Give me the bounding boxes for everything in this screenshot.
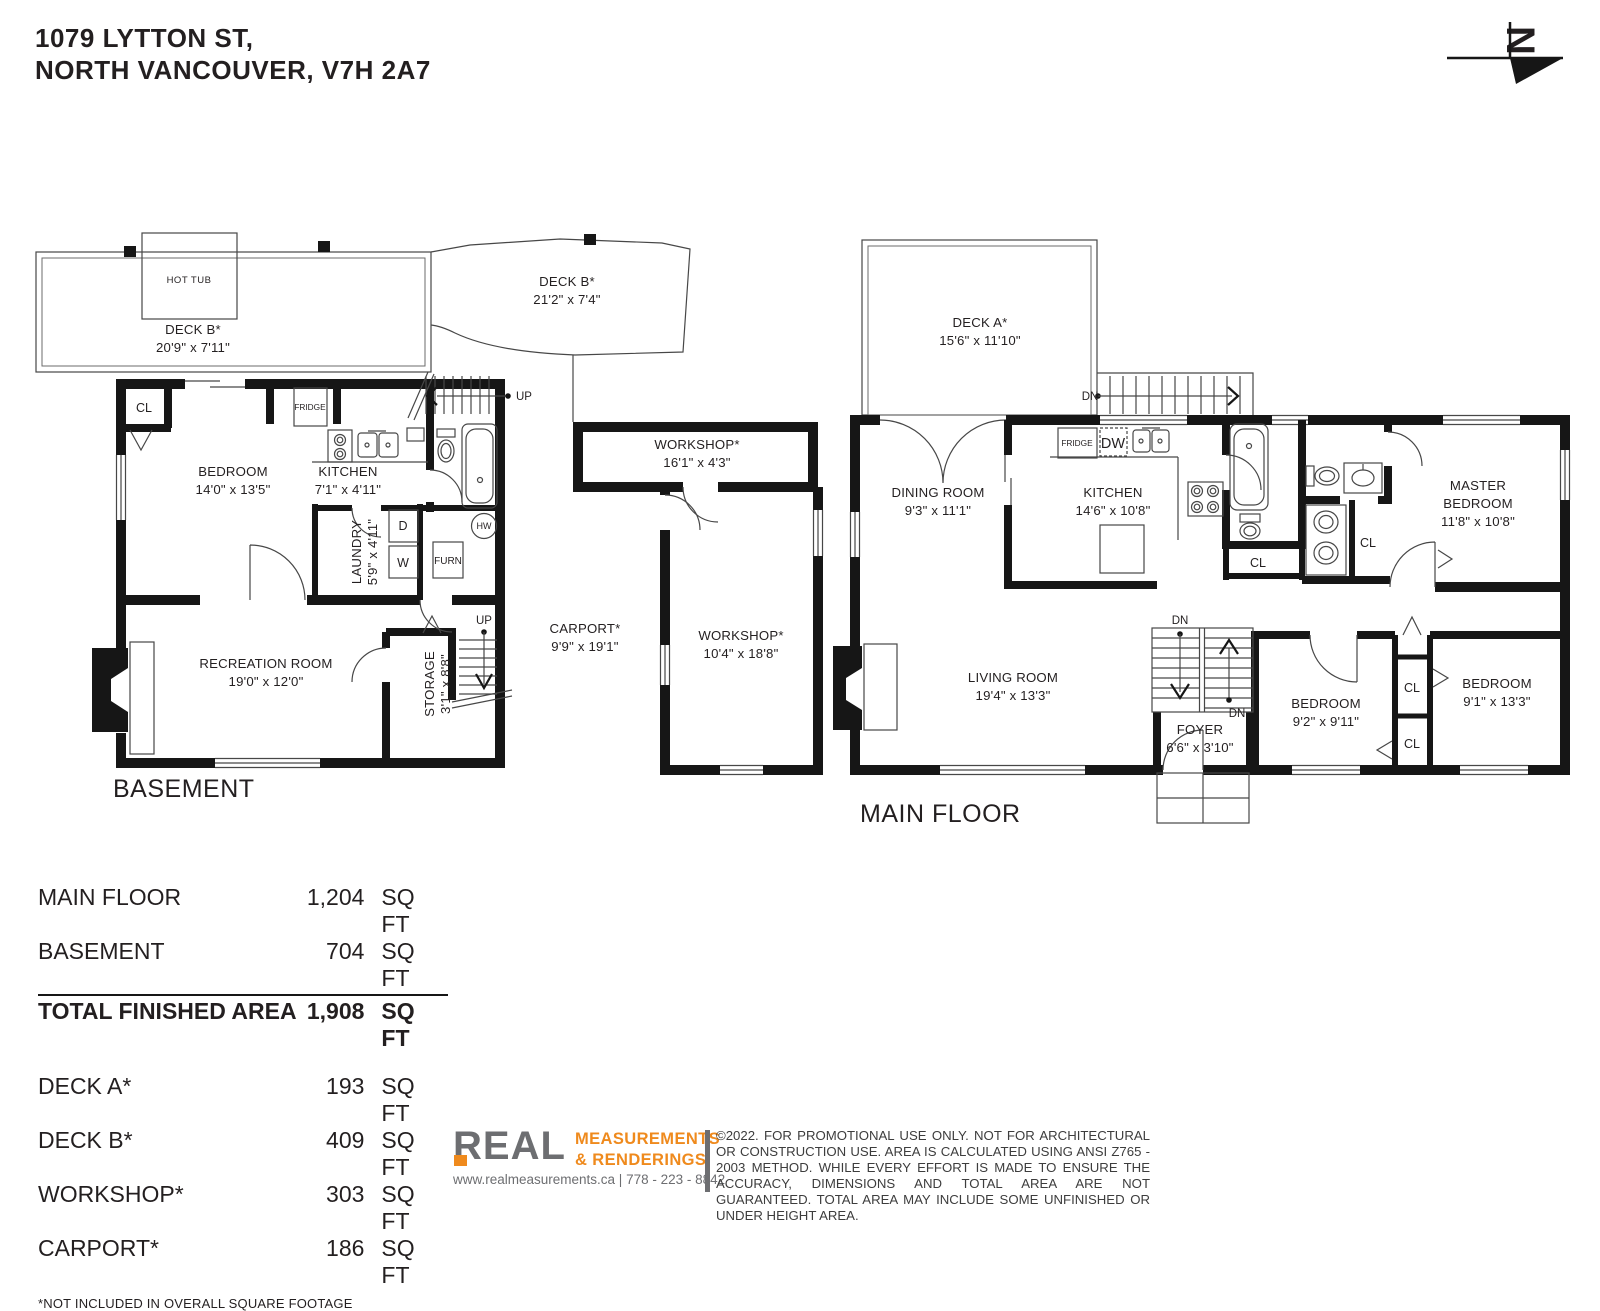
table-row: WORKSHOP* 303 SQ FT <box>38 1181 448 1235</box>
area-value: 704 <box>301 938 364 992</box>
living-room-label: LIVING ROOM <box>968 670 1058 685</box>
area-label: WORKSHOP* <box>38 1181 301 1235</box>
area-label: DECK B* <box>38 1127 301 1181</box>
area-label: CARPORT* <box>38 1235 301 1289</box>
deck-dn-label: DN <box>1082 391 1099 403</box>
master-bedroom-dims: 11'8" x 10'8" <box>1441 514 1515 529</box>
basement-up-top-label: UP <box>516 391 532 403</box>
workshop-top-dims: 16'1" x 4'3" <box>663 455 731 470</box>
stairs-dn-top-label: DN <box>1172 615 1189 627</box>
master-bedroom-label-1: MASTER <box>1450 478 1506 493</box>
foyer-label: FOYER <box>1177 722 1223 737</box>
area-label: BASEMENT <box>38 938 301 992</box>
carport-label: CARPORT* <box>550 621 621 636</box>
logo-orange-square-icon <box>454 1155 467 1166</box>
area-value: 1,908 <box>301 998 364 1052</box>
main-deck-a: DECK A* 15'6" x 11'10" DN <box>862 240 1253 415</box>
table-row: BASEMENT 704 SQ FT <box>38 938 448 992</box>
tagline-line-1: MEASUREMENTS <box>575 1129 720 1150</box>
footer-divider <box>705 1130 710 1192</box>
basement-closet-label: CL <box>136 401 152 415</box>
main-kitchen-label: KITCHEN <box>1083 485 1142 500</box>
dishwasher-label: DW <box>1101 436 1125 452</box>
rec-room-dims: 19'0" x 12'0" <box>229 674 304 689</box>
washer-label: W <box>397 556 409 570</box>
area-value: 193 <box>301 1073 364 1127</box>
master-bedroom-label-2: BEDROOM <box>1443 496 1513 511</box>
area-unit: SQ FT <box>381 884 448 938</box>
bedroom2-dims: 9'1" x 13'3" <box>1463 694 1531 709</box>
basement-up-bottom-label: UP <box>476 615 492 627</box>
deck-a-dims: 15'6" x 11'10" <box>939 333 1021 348</box>
living-room-dims: 19'4" x 13'3" <box>976 688 1051 703</box>
hall-closet-label: CL <box>1250 556 1266 570</box>
basement-bedroom-dims: 14'0" x 13'5" <box>196 482 271 497</box>
basement-kitchen-dims: 7'1" x 4'11" <box>315 482 382 497</box>
main-floor-walls <box>833 415 1570 775</box>
area-summary-table: MAIN FLOOR 1,204 SQ FT BASEMENT 704 SQ F… <box>38 884 448 1311</box>
area-unit: SQ FT <box>381 1073 448 1127</box>
furnace-label: FURN <box>434 556 462 567</box>
table-row-total: TOTAL FINISHED AREA 1,908 SQ FT <box>38 994 448 1052</box>
hot-water-label: HW <box>477 521 492 531</box>
dryer-label: D <box>398 519 407 533</box>
area-value: 1,204 <box>301 884 364 938</box>
bed1-closet-label: CL <box>1404 681 1420 695</box>
basement-title: BASEMENT <box>113 775 255 803</box>
deck-b-right-label: DECK B* <box>539 274 595 289</box>
disclaimer-text: ©2022. FOR PROMOTIONAL USE ONLY. NOT FOR… <box>716 1128 1150 1224</box>
deck-b-left-label: DECK B* <box>165 322 221 337</box>
workshop-main-label: WORKSHOP* <box>698 628 783 643</box>
north-arrow-icon: N <box>1447 22 1563 84</box>
tagline-line-2: & RENDERINGS <box>575 1150 720 1171</box>
deck-b-left-dims: 20'9" x 7'11" <box>156 340 230 355</box>
table-row: DECK B* 409 SQ FT <box>38 1127 448 1181</box>
laundry-dims: 5'9" x 4'11" <box>365 519 380 586</box>
hot-tub-label: HOT TUB <box>167 275 212 286</box>
workshop-carport: WORKSHOP* 16'1" x 4'3" CARPORT* 9'9" x 1… <box>550 422 823 775</box>
basement-fridge-label: FRIDGE <box>294 402 326 412</box>
storage-dims: 3'1" x 8'8" <box>438 654 453 714</box>
main-floor-title: MAIN FLOOR <box>860 800 1021 828</box>
rec-room-label: RECREATION ROOM <box>199 656 332 671</box>
dining-dims: 9'3" x 11'1" <box>905 503 972 518</box>
area-unit: SQ FT <box>381 998 448 1052</box>
main-fridge-label: FRIDGE <box>1061 438 1093 448</box>
table-row: MAIN FLOOR 1,204 SQ FT <box>38 884 448 938</box>
area-unit: SQ FT <box>381 1181 448 1235</box>
bedroom2-label: BEDROOM <box>1462 676 1532 691</box>
north-label: N <box>1498 26 1542 55</box>
area-unit: SQ FT <box>381 1235 448 1289</box>
real-logo: REAL <box>453 1126 566 1166</box>
deck-a-label: DECK A* <box>953 315 1008 330</box>
bedroom1-label: BEDROOM <box>1291 696 1361 711</box>
logo-url-phone: www.realmeasurements.ca | 778 - 223 - 88… <box>453 1172 725 1187</box>
footer: REAL MEASUREMENTS & RENDERINGS www.realm… <box>453 1126 1153 1198</box>
bedroom1-dims: 9'2" x 9'11" <box>1293 714 1360 729</box>
table-row: CARPORT* 186 SQ FT <box>38 1235 448 1289</box>
basement-bedroom-label: BEDROOM <box>198 464 268 479</box>
carport-dims: 9'9" x 19'1" <box>551 639 619 654</box>
workshop-main-dims: 10'4" x 18'8" <box>704 646 779 661</box>
area-label: MAIN FLOOR <box>38 884 301 938</box>
laundry-label: LAUNDRY <box>349 520 364 584</box>
area-unit: SQ FT <box>381 1127 448 1181</box>
area-footnote: *NOT INCLUDED IN OVERALL SQUARE FOOTAGE <box>38 1296 448 1311</box>
area-unit: SQ FT <box>381 938 448 992</box>
area-label: TOTAL FINISHED AREA <box>38 998 301 1052</box>
foyer-dims: 6'6" x 3'10" <box>1166 740 1234 755</box>
deck-b-right-dims: 21'2" x 7'4" <box>533 292 601 307</box>
area-label: DECK A* <box>38 1073 301 1127</box>
area-value: 186 <box>301 1235 364 1289</box>
bed2-closet-label: CL <box>1404 737 1420 751</box>
main-kitchen-dims: 14'6" x 10'8" <box>1076 503 1151 518</box>
basement-kitchen-label: KITCHEN <box>318 464 377 479</box>
basement-deck-b: HOT TUB DECK B* 20'9" x 7'11" DECK B* 21… <box>36 233 690 422</box>
logo-tagline: MEASUREMENTS & RENDERINGS <box>575 1129 720 1171</box>
dining-label: DINING ROOM <box>891 485 984 500</box>
area-value: 409 <box>301 1127 364 1181</box>
storage-label: STORAGE <box>422 651 437 717</box>
stairs-dn-bottom-label: DN <box>1229 708 1246 720</box>
area-value: 303 <box>301 1181 364 1235</box>
master-closet-label: CL <box>1360 536 1376 550</box>
workshop-top-label: WORKSHOP* <box>654 437 739 452</box>
table-row: DECK A* 193 SQ FT <box>38 1073 448 1127</box>
